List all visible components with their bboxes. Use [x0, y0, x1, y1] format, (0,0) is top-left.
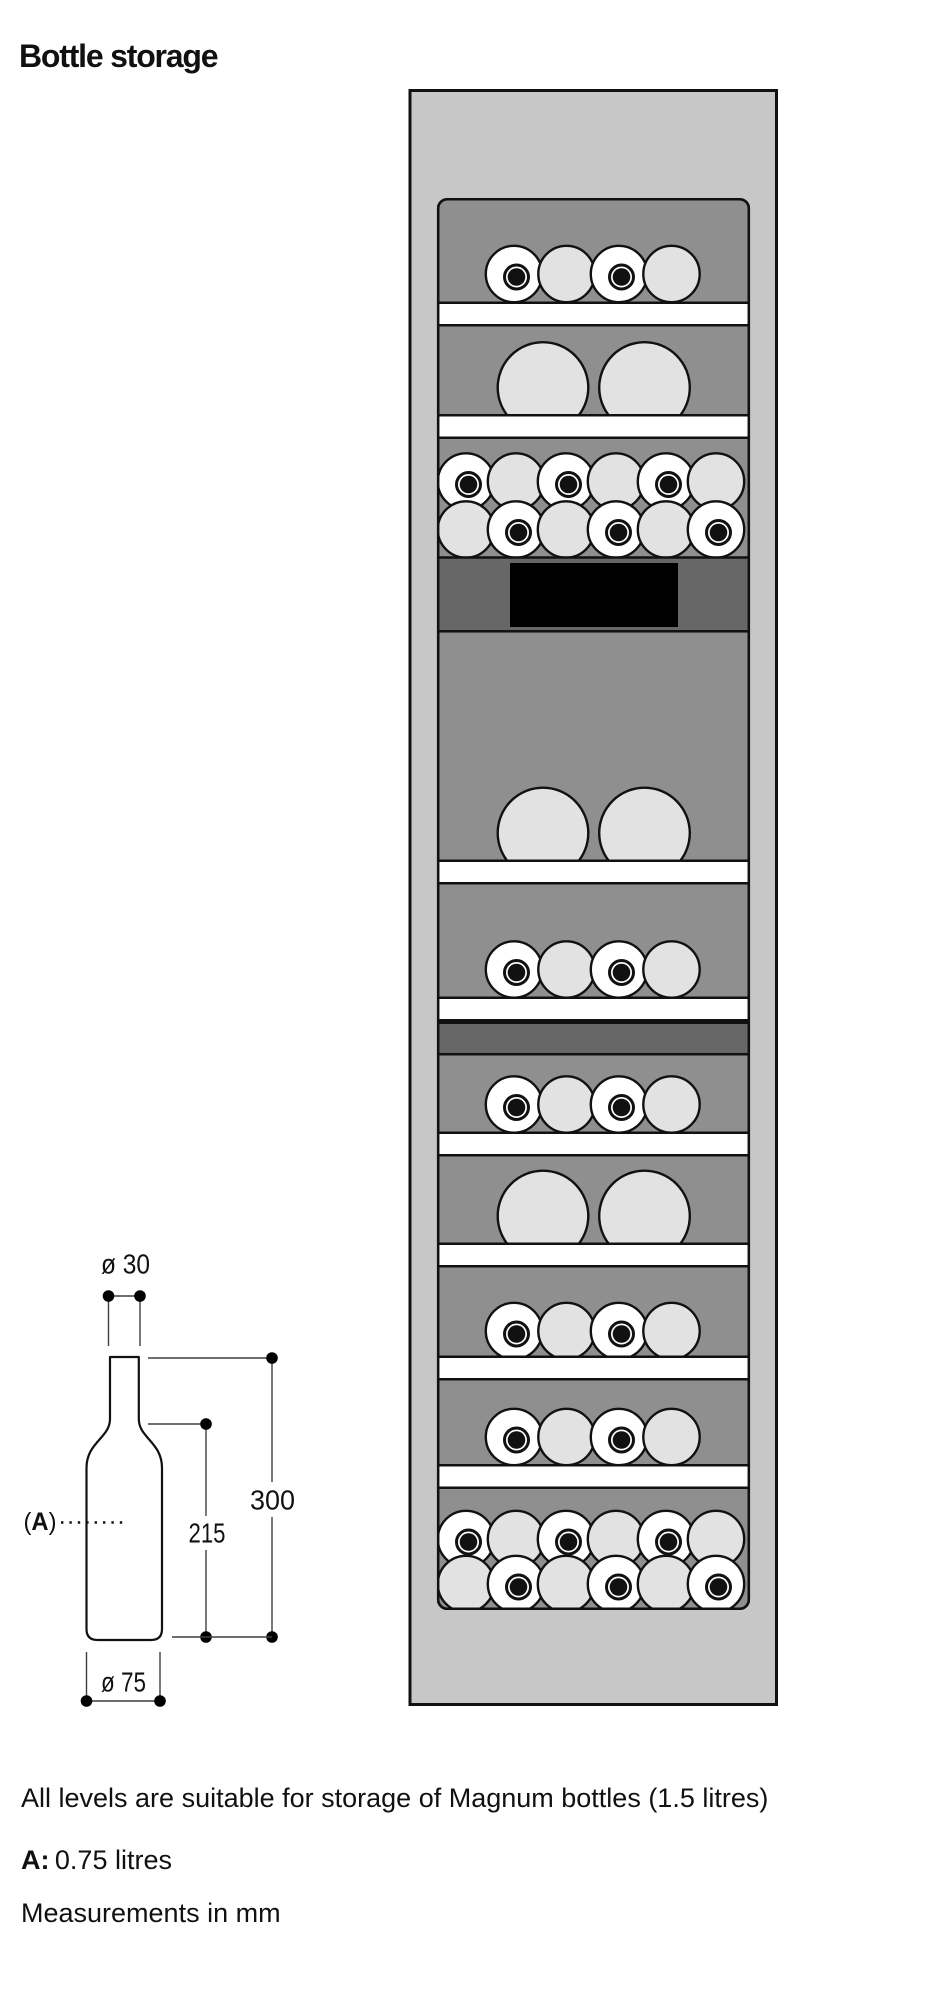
svg-text:300: 300	[250, 1485, 295, 1516]
svg-text:(A): (A)	[24, 1508, 57, 1536]
svg-text:215: 215	[189, 1518, 226, 1549]
svg-text:ø 30: ø 30	[101, 1249, 150, 1280]
svg-text:ø 75: ø 75	[101, 1667, 146, 1698]
